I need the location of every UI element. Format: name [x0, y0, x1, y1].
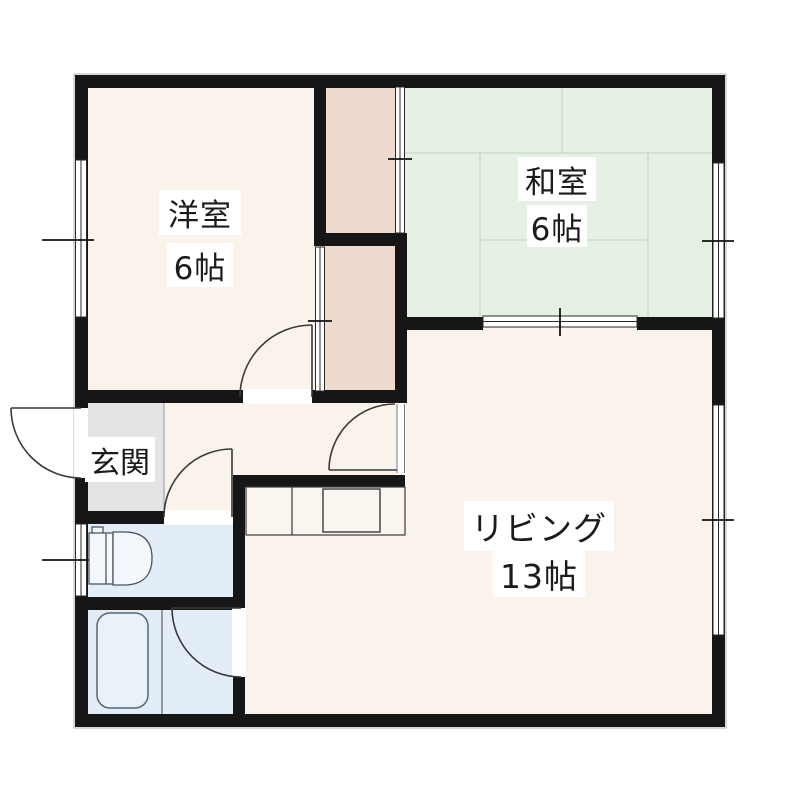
wall-western-bottom-right	[312, 390, 407, 403]
wall-living-left-upper	[233, 475, 245, 608]
entrance-door-arc	[11, 408, 81, 478]
wall-closet-left	[314, 87, 326, 240]
bathtub-icon	[97, 613, 148, 708]
floor-plan-drawing	[0, 0, 800, 800]
wall-japanese-bottom-right	[637, 317, 725, 330]
japanese-room-size: 6帖	[527, 205, 587, 247]
western-door-opening	[243, 389, 312, 404]
sliding-door-closet-top	[396, 87, 405, 233]
kitchen-counter-icon	[246, 487, 405, 535]
wall-western-bottom-left	[75, 390, 243, 403]
wall-living-left-lower	[233, 677, 245, 714]
closet-bottom-floor	[320, 238, 400, 396]
window-western-left	[76, 160, 87, 317]
western-room-label: 洋室	[159, 190, 241, 235]
closet-top-floor	[320, 82, 400, 238]
floor-plan: 洋室 6帖 和室 6帖 リビング 13帖 玄関	[0, 0, 800, 800]
entrance-label: 玄関	[85, 437, 155, 482]
wall-entrance-bottom	[75, 511, 164, 524]
sliding-door-closet-bottom	[316, 247, 325, 391]
western-room-size: 6帖	[167, 243, 233, 287]
wall-kitchen	[245, 475, 405, 487]
toilet-door-opening	[164, 510, 233, 525]
wall-closet-middle	[314, 233, 407, 246]
japanese-room-label: 和室	[518, 157, 596, 201]
wall-bottom	[75, 714, 725, 727]
living-room-size: 13帖	[493, 551, 585, 597]
wall-japanese-bottom-left	[400, 317, 483, 330]
living-room-label: リビング	[464, 501, 614, 551]
bathroom-door-opening	[232, 608, 246, 677]
wall-top	[75, 75, 725, 88]
